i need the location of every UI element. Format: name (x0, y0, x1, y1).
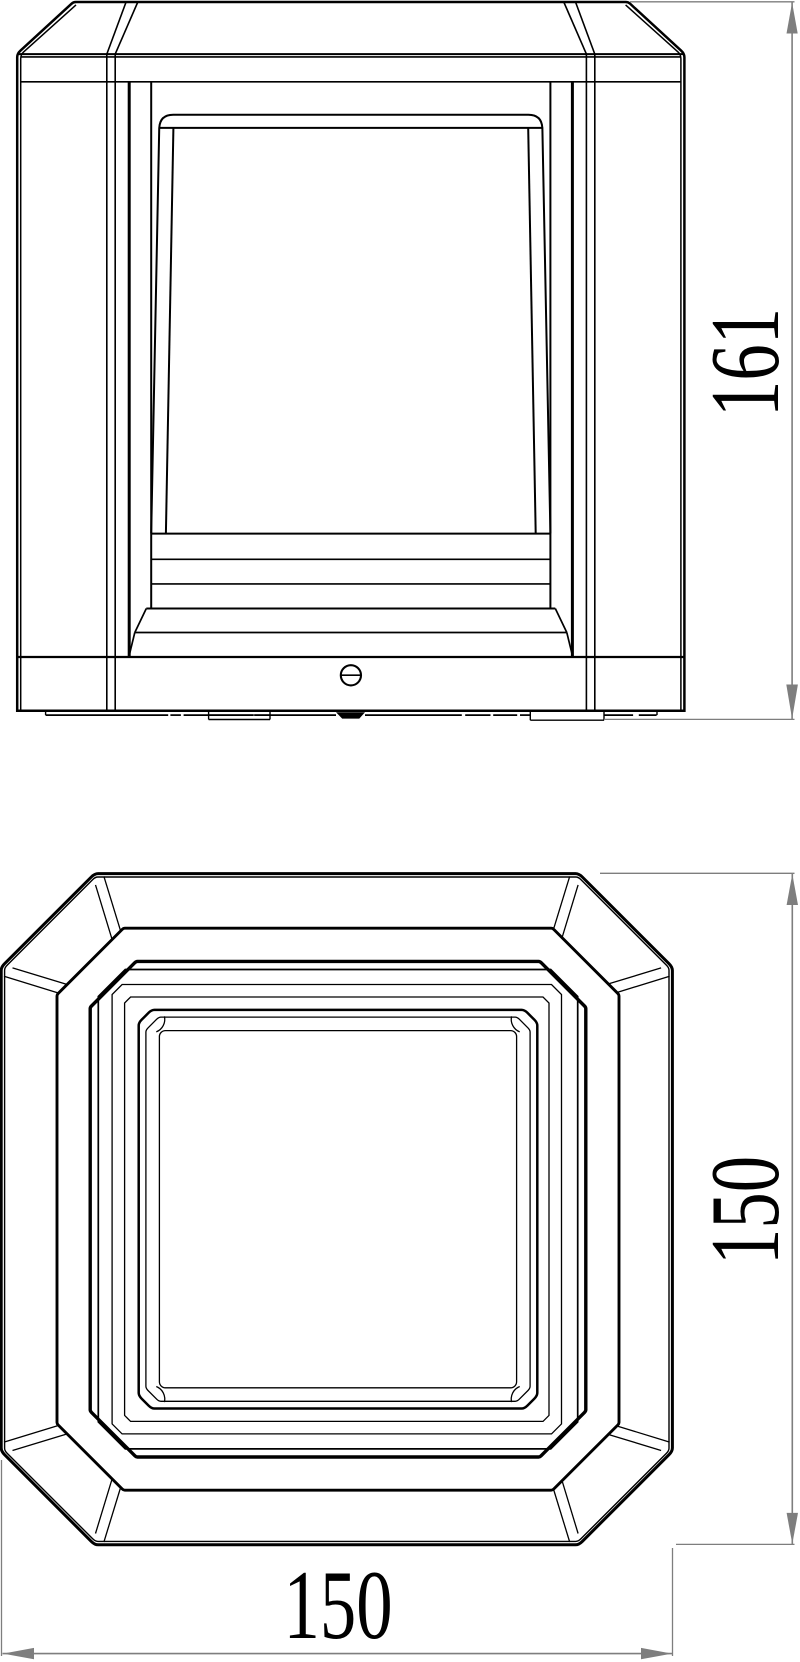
svg-text:150: 150 (690, 1156, 799, 1265)
svg-text:150: 150 (283, 1550, 392, 1659)
svg-text:161: 161 (690, 308, 799, 417)
